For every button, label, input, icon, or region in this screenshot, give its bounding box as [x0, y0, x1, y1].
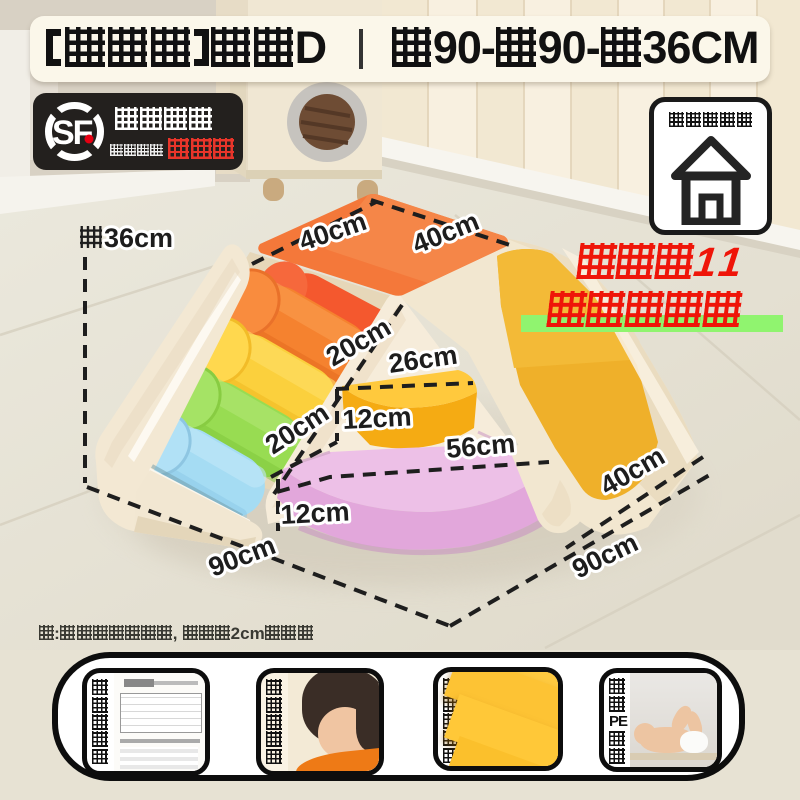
svg-text:12cm: 12cm	[342, 401, 413, 435]
svg-text:36cm: 36cm	[104, 223, 173, 253]
svg-text:12cm: 12cm	[280, 496, 351, 530]
svg-text:SF: SF	[52, 114, 93, 152]
svg-text:56cm: 56cm	[445, 428, 516, 464]
